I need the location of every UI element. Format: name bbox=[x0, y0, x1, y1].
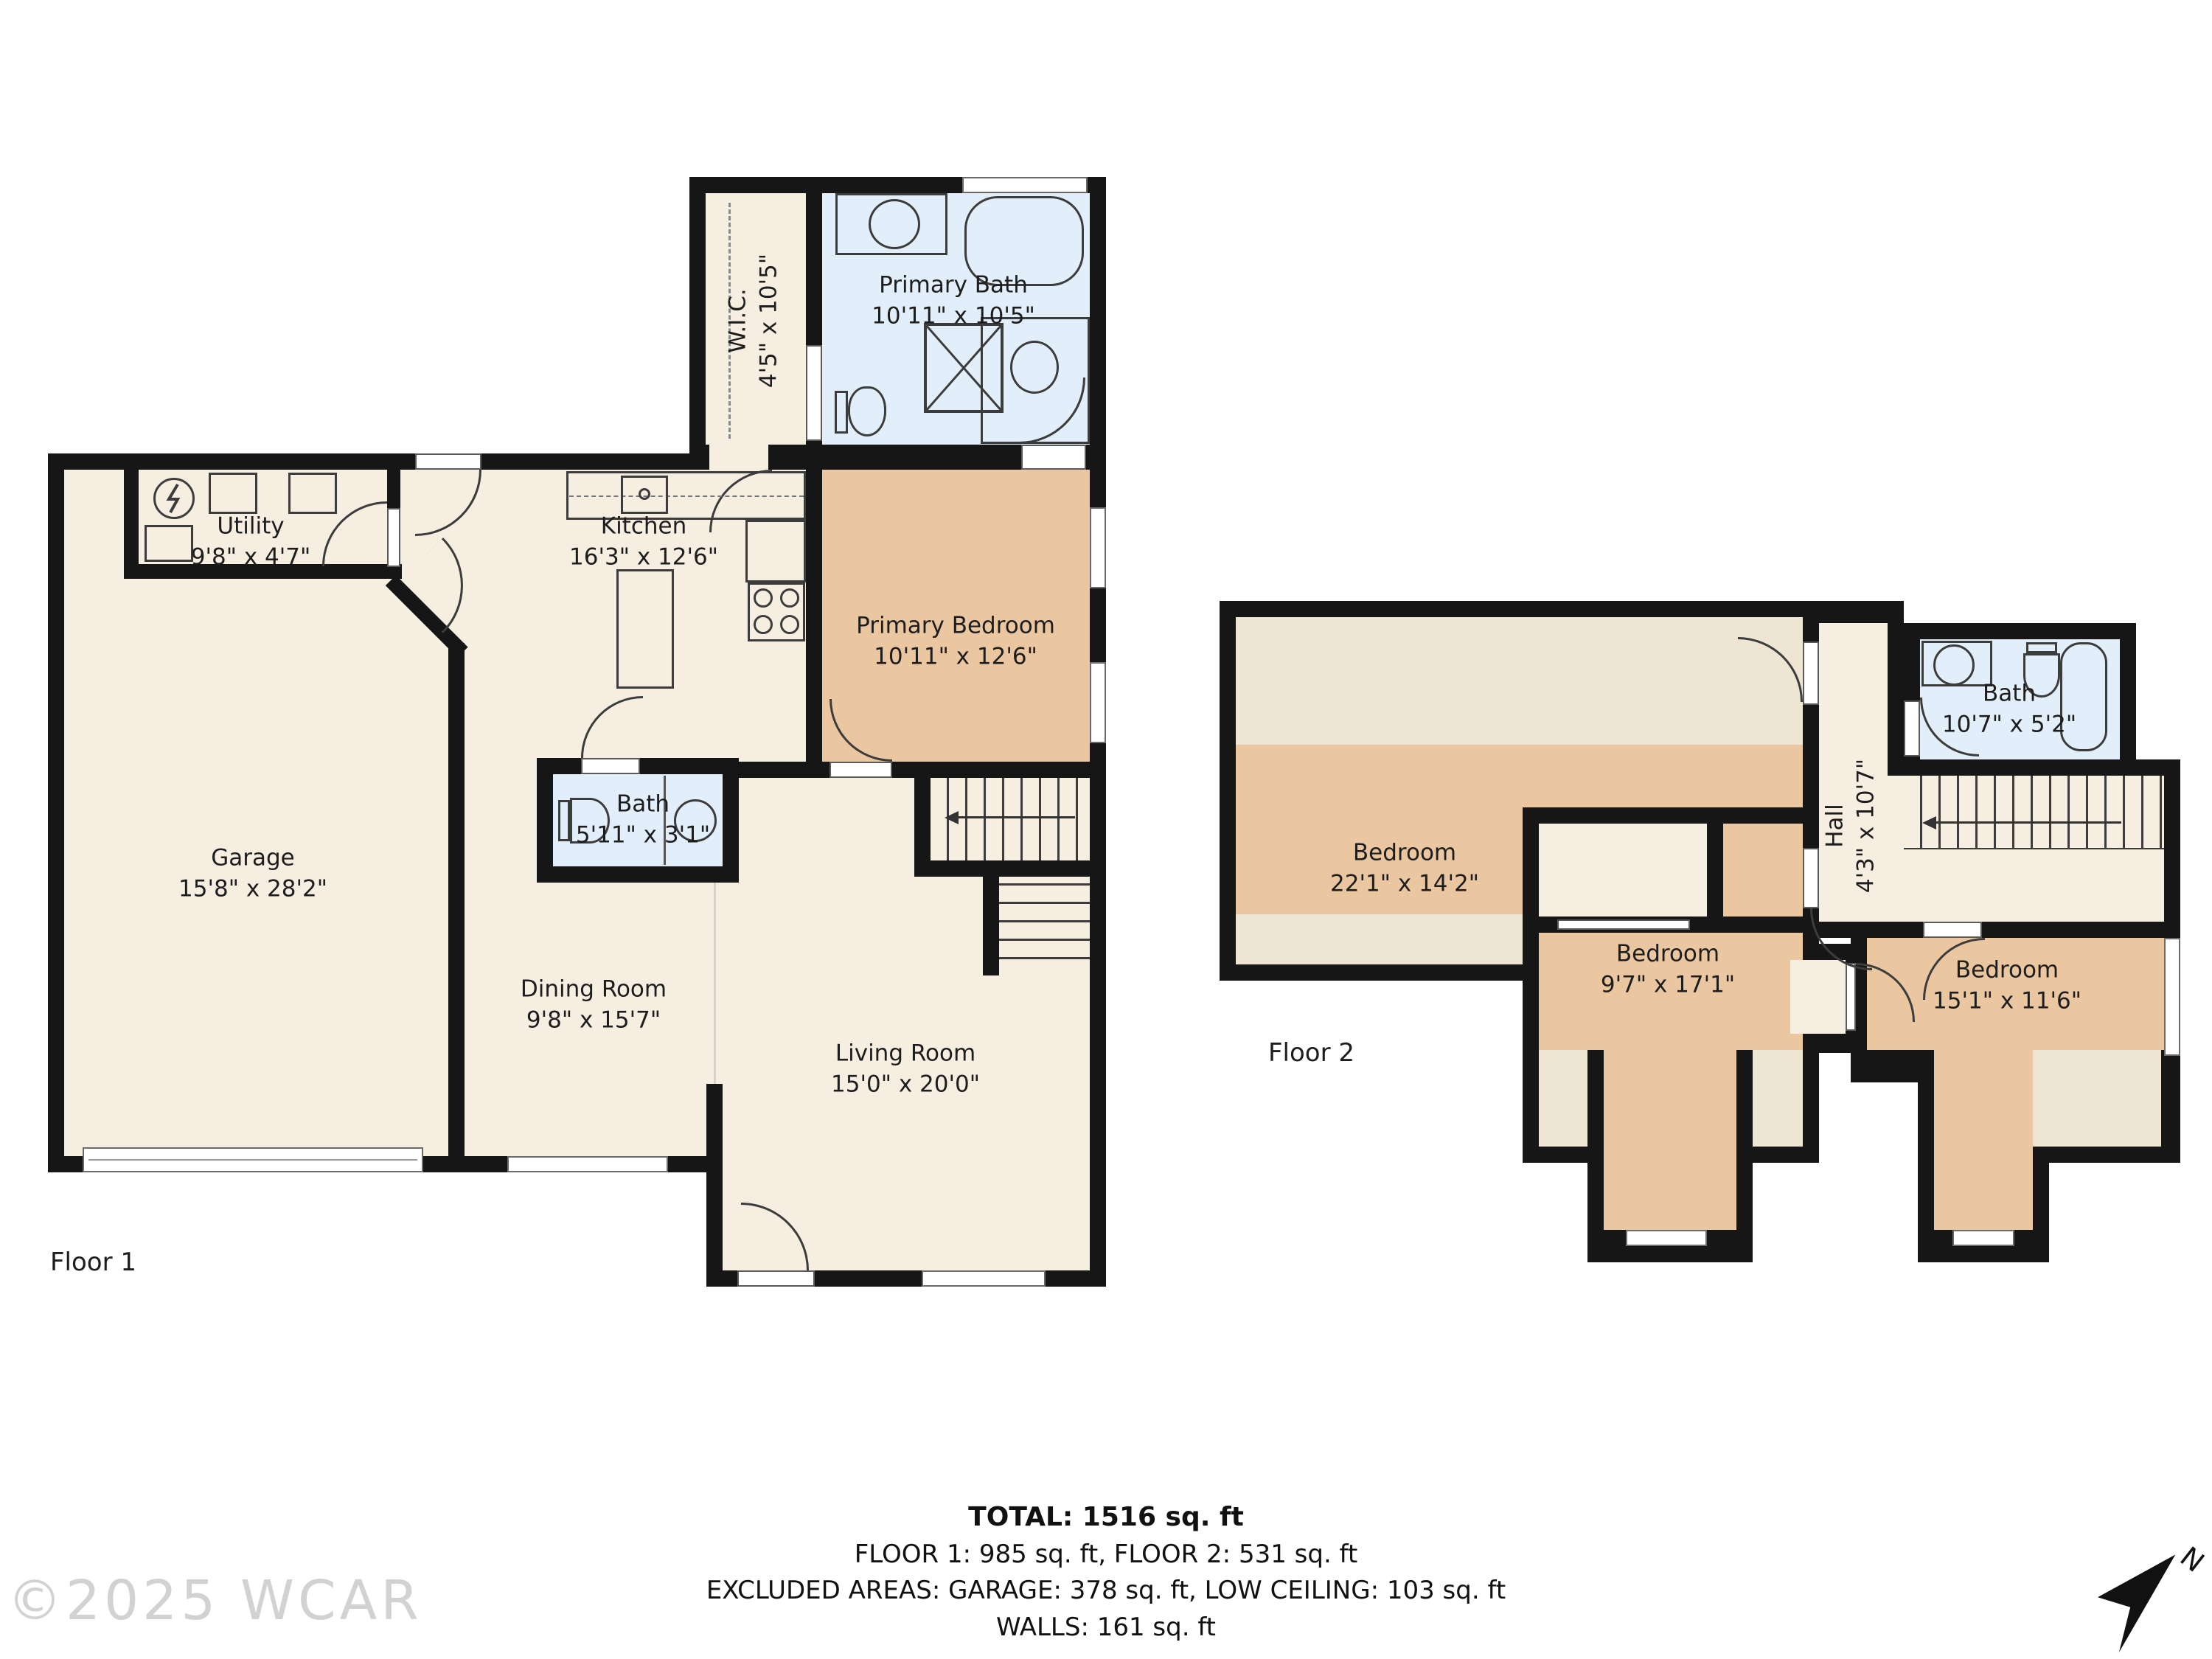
burner-2 bbox=[780, 588, 799, 608]
bedroom-right-door-leaf bbox=[1923, 922, 1982, 938]
utility-wall-right bbox=[387, 470, 400, 508]
burner-4 bbox=[780, 615, 799, 634]
dryer-icon bbox=[288, 473, 337, 514]
bath2-door-leaf bbox=[1904, 700, 1920, 757]
burner-1 bbox=[754, 588, 773, 608]
floor-areas: FLOOR 1: 985 sq. ft, FLOOR 2: 531 sq. ft bbox=[0, 1537, 2212, 1573]
room-dims: 5'11" x 3'1" bbox=[576, 820, 710, 851]
room-name: Bath bbox=[1942, 678, 2076, 709]
burner-3 bbox=[754, 615, 773, 634]
staircase-floor2-landing bbox=[1904, 848, 2164, 922]
room-dims: 10'7" x 5'2" bbox=[1942, 709, 2076, 740]
closet-sliding-door bbox=[1557, 919, 1690, 930]
room-name: Bedroom bbox=[1330, 838, 1479, 869]
room-name: Bedroom bbox=[1933, 955, 2081, 986]
room-name: Primary Bath bbox=[872, 270, 1035, 301]
room-label-living: Living Room 15'0" x 20'0" bbox=[831, 1038, 980, 1099]
toilet-tank bbox=[835, 391, 848, 434]
bedroom-window-1 bbox=[1090, 507, 1106, 588]
room-label-bedroom-large: Bedroom 22'1" x 14'2" bbox=[1330, 838, 1479, 899]
room-dims: 15'0" x 20'0" bbox=[831, 1069, 980, 1100]
room-label-hall: Hall 4'3" x 10'7" bbox=[1820, 759, 1881, 893]
room-label-primary-bath: Primary Bath 10'11" x 10'5" bbox=[872, 270, 1035, 331]
kitchen-island bbox=[616, 569, 674, 689]
washer-icon bbox=[209, 473, 257, 514]
stair2-direction-line bbox=[1935, 821, 2121, 824]
room-label-dining: Dining Room 9'8" x 15'7" bbox=[521, 974, 667, 1035]
right-dormer-window bbox=[1952, 1230, 2014, 1246]
mid-bedroom-low-right bbox=[1753, 1050, 1803, 1147]
room-dims: 16'3" x 12'6" bbox=[569, 542, 718, 573]
stair1-wall-left bbox=[914, 778, 931, 860]
total-area: TOTAL: 1516 sq. ft bbox=[0, 1498, 2212, 1537]
room-label-wic: W.I.C. 4'5" x 10'5" bbox=[723, 254, 784, 388]
utility-wall-left bbox=[124, 470, 139, 579]
room-dims: 4'5" x 10'5" bbox=[754, 254, 785, 388]
room-name: Utility bbox=[191, 511, 311, 542]
room-name: Hall bbox=[1820, 759, 1851, 893]
compass-n-label: N bbox=[2174, 1540, 2211, 1579]
sink-icon bbox=[869, 199, 920, 249]
hall-stair-connector bbox=[1888, 776, 1904, 922]
living-window bbox=[922, 1270, 1046, 1287]
room-name: Dining Room bbox=[521, 974, 667, 1005]
room-label-small-bath: Bath 5'11" x 3'1" bbox=[576, 789, 710, 850]
floor2-label: Floor 2 bbox=[1268, 1038, 1354, 1068]
watermark: ©2025 WCAR bbox=[7, 1569, 422, 1632]
center-closet bbox=[1790, 960, 1846, 1034]
room-dims: 9'8" x 15'7" bbox=[521, 1005, 667, 1036]
bedroom-large-low-ceiling-bottom bbox=[1236, 914, 1523, 964]
mid-bedroom-low-left bbox=[1539, 1050, 1587, 1147]
right-bedroom-low-right bbox=[2033, 1050, 2161, 1147]
floorplan-canvas: W.I.C. 4'5" x 10'5" Primary Bath 10'11" … bbox=[0, 0, 2212, 1659]
kitchen-sink-drain bbox=[639, 488, 650, 500]
toilet-icon bbox=[848, 386, 886, 437]
stair1-wall-mid bbox=[914, 860, 1090, 877]
room-name: Bedroom bbox=[1601, 939, 1735, 970]
room-bedroom-large-upper bbox=[1236, 745, 1803, 807]
room-dims: 10'11" x 10'5" bbox=[872, 301, 1035, 332]
small-bath-toilet-tank bbox=[558, 800, 570, 841]
bedroom-large-low-ceiling-top bbox=[1236, 617, 1803, 745]
room-name: Kitchen bbox=[569, 511, 718, 542]
room-label-kitchen: Kitchen 16'3" x 12'6" bbox=[569, 511, 718, 572]
center-closet-door-leaf bbox=[1846, 963, 1856, 1031]
right-bedroom-dormer bbox=[1934, 1050, 2033, 1230]
floor1-label: Floor 1 bbox=[50, 1248, 136, 1277]
room-label-garage: Garage 15'8" x 28'2" bbox=[178, 843, 327, 904]
room-label-bath2: Bath 10'7" x 5'2" bbox=[1942, 678, 2076, 740]
entry-door-leaf bbox=[415, 453, 481, 470]
room-label-utility: Utility 9'8" x 4'7" bbox=[191, 511, 311, 572]
garage-door-line bbox=[88, 1159, 417, 1161]
front-door-leaf bbox=[737, 1270, 815, 1287]
room-label-bedroom-right: Bedroom 15'1" x 11'6" bbox=[1933, 955, 2081, 1016]
room-label-bedroom-mid: Bedroom 9'7" x 17'1" bbox=[1601, 939, 1735, 1000]
dining-window bbox=[507, 1156, 668, 1172]
utility-cabinet bbox=[145, 525, 193, 562]
bedroom-large-door-leaf bbox=[1803, 641, 1819, 705]
electrical-panel-icon bbox=[153, 478, 195, 519]
mid-bedroom-dormer bbox=[1604, 1050, 1736, 1230]
stair1-wall-lower bbox=[983, 877, 999, 975]
stair1-direction-line bbox=[957, 816, 1075, 818]
stair2-direction-arrow bbox=[1922, 816, 1936, 829]
primary-bath-door-leaf bbox=[1021, 445, 1086, 470]
staircase-floor2 bbox=[1904, 776, 2164, 848]
wic-pocket-door bbox=[806, 345, 822, 441]
room-dims: 10'11" x 12'6" bbox=[856, 641, 1055, 672]
bath-block-window bbox=[962, 177, 1088, 193]
utility-door-leaf bbox=[387, 508, 400, 567]
kitchen-counter-right bbox=[745, 520, 806, 582]
staircase-lower-flight bbox=[999, 877, 1090, 975]
garage-dining-wall bbox=[448, 643, 465, 1156]
wic-opening bbox=[709, 445, 768, 470]
room-bedroom-mid-nook bbox=[1723, 824, 1803, 917]
mid-dormer-window bbox=[1626, 1230, 1707, 1246]
room-dims: 4'3" x 10'7" bbox=[1851, 759, 1882, 893]
room-name: W.I.C. bbox=[723, 254, 754, 388]
right-bedroom-window bbox=[2164, 938, 2180, 1056]
bath2-toilet-tank bbox=[2026, 642, 2057, 653]
room-dims: 9'8" x 4'7" bbox=[191, 542, 311, 573]
room-name: Living Room bbox=[831, 1038, 980, 1069]
room-name: Primary Bedroom bbox=[856, 611, 1055, 641]
bedroom-mid-door-leaf bbox=[1803, 848, 1819, 908]
room-dims: 15'8" x 28'2" bbox=[178, 874, 327, 905]
small-bath-door-leaf bbox=[581, 758, 640, 774]
room-name: Garage bbox=[178, 843, 327, 874]
room-dims: 9'7" x 17'1" bbox=[1601, 970, 1735, 1001]
bedroom-door-leaf bbox=[829, 762, 892, 778]
kitchen-cabinet-dashed-line bbox=[569, 495, 804, 497]
compass-north-icon: N bbox=[2085, 1540, 2211, 1659]
room-dims: 15'1" x 11'6" bbox=[1933, 986, 2081, 1017]
bedroom-window-2 bbox=[1090, 662, 1106, 743]
room-label-primary-bedroom: Primary Bedroom 10'11" x 12'6" bbox=[856, 611, 1055, 672]
stair1-direction-arrow bbox=[945, 811, 959, 824]
mid-bedroom-closet bbox=[1539, 824, 1707, 917]
room-name: Bath bbox=[576, 789, 710, 820]
room-dims: 22'1" x 14'2" bbox=[1330, 869, 1479, 900]
